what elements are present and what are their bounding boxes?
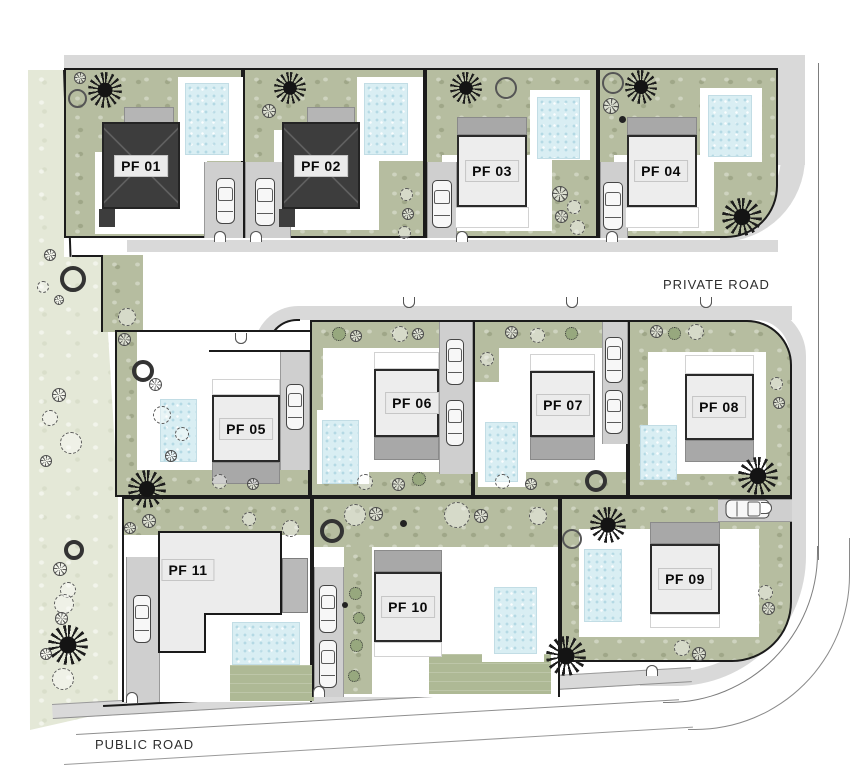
plot-label[interactable]: PF 10 [381, 596, 435, 618]
front-yard [209, 332, 310, 352]
entry-steps [99, 209, 115, 227]
house-roof-band [374, 550, 442, 572]
ring-tree-icon [320, 519, 344, 543]
bush-icon [37, 281, 49, 293]
ring-tree-icon [562, 529, 582, 549]
private-road-label: PRIVATE ROAD [663, 277, 770, 292]
bush-icon [40, 648, 52, 660]
car-icon [446, 339, 464, 385]
house-base [374, 352, 439, 369]
bush-icon [52, 668, 74, 690]
bush-icon [570, 220, 585, 235]
car-icon [432, 180, 452, 228]
car-icon [605, 390, 623, 434]
bush-icon [118, 333, 131, 346]
bush-icon [349, 587, 362, 600]
plot-pf07[interactable]: PF 07 [473, 320, 628, 497]
bush-icon [44, 249, 56, 261]
plot-pf08[interactable]: PF 08 [628, 320, 792, 497]
pool [640, 425, 677, 480]
bush-icon [212, 474, 227, 489]
top-sidewalk [64, 55, 805, 68]
house-base [212, 379, 280, 395]
plot-label[interactable]: PF 01 [114, 155, 168, 177]
plot-pf01[interactable]: PF 01 [64, 68, 243, 238]
pool [185, 83, 229, 155]
pool [485, 422, 518, 482]
bush-icon [412, 472, 426, 486]
bush-icon [565, 327, 578, 340]
bush-icon [529, 507, 547, 525]
pool [537, 97, 580, 159]
tree-dot-icon [342, 602, 348, 608]
ring-tree-icon [64, 540, 84, 560]
bush-icon [124, 522, 136, 534]
right-boundary-line [818, 63, 819, 560]
dark-tree-icon [48, 625, 88, 665]
dark-tree-icon [274, 72, 306, 104]
bush-icon [118, 308, 136, 326]
bush-icon [603, 98, 619, 114]
bush-icon [247, 478, 259, 490]
bush-icon [153, 406, 171, 424]
bush-icon [54, 295, 64, 305]
bush-icon [55, 612, 68, 625]
bush-icon [54, 594, 74, 614]
bush-icon [692, 647, 706, 661]
bush-icon [149, 378, 162, 391]
bush-icon [348, 670, 360, 682]
plot-pf06[interactable]: PF 06 [310, 320, 473, 497]
bush-icon [567, 200, 581, 214]
bush-icon [505, 326, 518, 339]
bush-icon [344, 504, 366, 526]
bush-icon [242, 512, 256, 526]
house-roof-band [627, 117, 697, 135]
bush-icon [392, 326, 408, 342]
dark-tree-icon [738, 457, 778, 495]
house-roof-band [457, 117, 527, 135]
car-icon [605, 337, 623, 383]
ring-tree-icon [495, 77, 517, 99]
bush-icon [165, 450, 177, 462]
bush-icon [350, 639, 363, 652]
bush-icon [40, 455, 52, 467]
car-icon [319, 640, 337, 688]
bush-icon [773, 397, 785, 409]
bush-icon [444, 502, 470, 528]
bush-icon [332, 327, 346, 341]
plot-pf02[interactable]: PF 02 [243, 68, 425, 238]
car-icon [603, 182, 623, 230]
tree-dot-icon [400, 520, 407, 527]
house-roof-band [685, 440, 754, 462]
bush-icon [770, 377, 783, 390]
plot-label[interactable]: PF 09 [658, 568, 712, 590]
bush-icon [392, 478, 405, 491]
plot-pf09[interactable]: PF 09 [560, 497, 792, 662]
car-icon [133, 595, 151, 643]
plot-label[interactable]: PF 05 [219, 418, 273, 440]
plot-label[interactable]: PF 04 [634, 160, 688, 182]
house-base [685, 355, 754, 374]
plot-label[interactable]: PF 08 [692, 396, 746, 418]
bush-icon [530, 328, 545, 343]
bush-icon [762, 602, 775, 615]
dark-tree-icon [450, 72, 482, 104]
plot-pf10[interactable]: PF 10 [312, 497, 560, 697]
bush-icon [650, 325, 663, 338]
bush-icon [555, 210, 568, 223]
plot-pf04[interactable]: PF 04 [598, 68, 778, 238]
dark-tree-icon [128, 470, 166, 508]
pool [708, 95, 752, 157]
west-boundary-jog [72, 255, 103, 257]
bush-icon [688, 324, 704, 340]
bush-icon [474, 509, 488, 523]
road-band-right-top [778, 55, 805, 165]
bush-icon [402, 208, 414, 220]
bush-icon [350, 330, 362, 342]
pf11-building [158, 531, 286, 655]
bush-icon [758, 585, 773, 600]
pool [364, 83, 408, 155]
plot-label[interactable]: PF 06 [385, 392, 439, 414]
bush-icon [175, 427, 189, 441]
plot-label[interactable]: PF 02 [294, 155, 348, 177]
house-base [374, 642, 442, 657]
dark-tree-icon [590, 507, 626, 543]
tree-dot-icon [619, 116, 626, 123]
house-base [650, 614, 720, 628]
pool [494, 587, 537, 654]
road-band-right [790, 358, 806, 486]
entry-steps [279, 209, 295, 227]
plot-label[interactable]: PF 11 [161, 559, 214, 581]
plot-label[interactable]: PF 07 [536, 394, 590, 416]
bush-icon [42, 410, 58, 426]
ring-tree-icon [585, 470, 607, 492]
bush-icon [495, 474, 510, 489]
pool [322, 420, 359, 484]
house-roof-band [650, 522, 720, 544]
bush-icon [668, 327, 681, 340]
dark-tree-icon [625, 70, 657, 104]
bush-icon [369, 507, 383, 521]
private-road-sidewalk [300, 306, 792, 320]
plot-label[interactable]: PF 03 [465, 160, 519, 182]
house-base [455, 207, 529, 228]
bush-icon [398, 226, 411, 239]
bush-icon [53, 562, 67, 576]
bush-icon [552, 186, 568, 202]
site-plan-canvas: PF 01 PF 02 PF 03 [0, 0, 858, 773]
public-road-label: PUBLIC ROAD [95, 737, 194, 752]
bush-icon [525, 478, 537, 490]
pool [584, 549, 622, 622]
bush-icon [412, 328, 424, 340]
car-icon [255, 178, 275, 226]
dark-tree-icon [546, 636, 586, 676]
bush-icon [74, 72, 86, 84]
dark-tree-icon [88, 72, 122, 108]
bush-icon [60, 432, 82, 454]
house-roof-band [374, 437, 439, 460]
lawn-patch [230, 665, 314, 701]
bush-icon [400, 188, 413, 201]
bush-icon [674, 640, 690, 656]
bush-icon [480, 352, 494, 366]
house-base [530, 354, 595, 371]
bush-icon [353, 612, 365, 624]
car-icon [319, 585, 337, 633]
house-base [625, 207, 699, 228]
plot-pf03[interactable]: PF 03 [425, 68, 598, 238]
dark-tree-icon [722, 198, 762, 236]
ring-tree-icon [602, 72, 624, 94]
car-icon [286, 384, 304, 430]
bush-icon [142, 514, 156, 528]
car-icon [216, 178, 235, 224]
house-roof-band [530, 437, 595, 460]
pf11-annex [282, 558, 308, 613]
ring-tree-icon [68, 89, 87, 108]
bush-icon [262, 104, 276, 118]
ring-tree-icon [60, 266, 86, 292]
bush-icon [357, 474, 373, 490]
car-icon [446, 400, 464, 446]
bush-icon [52, 388, 66, 402]
